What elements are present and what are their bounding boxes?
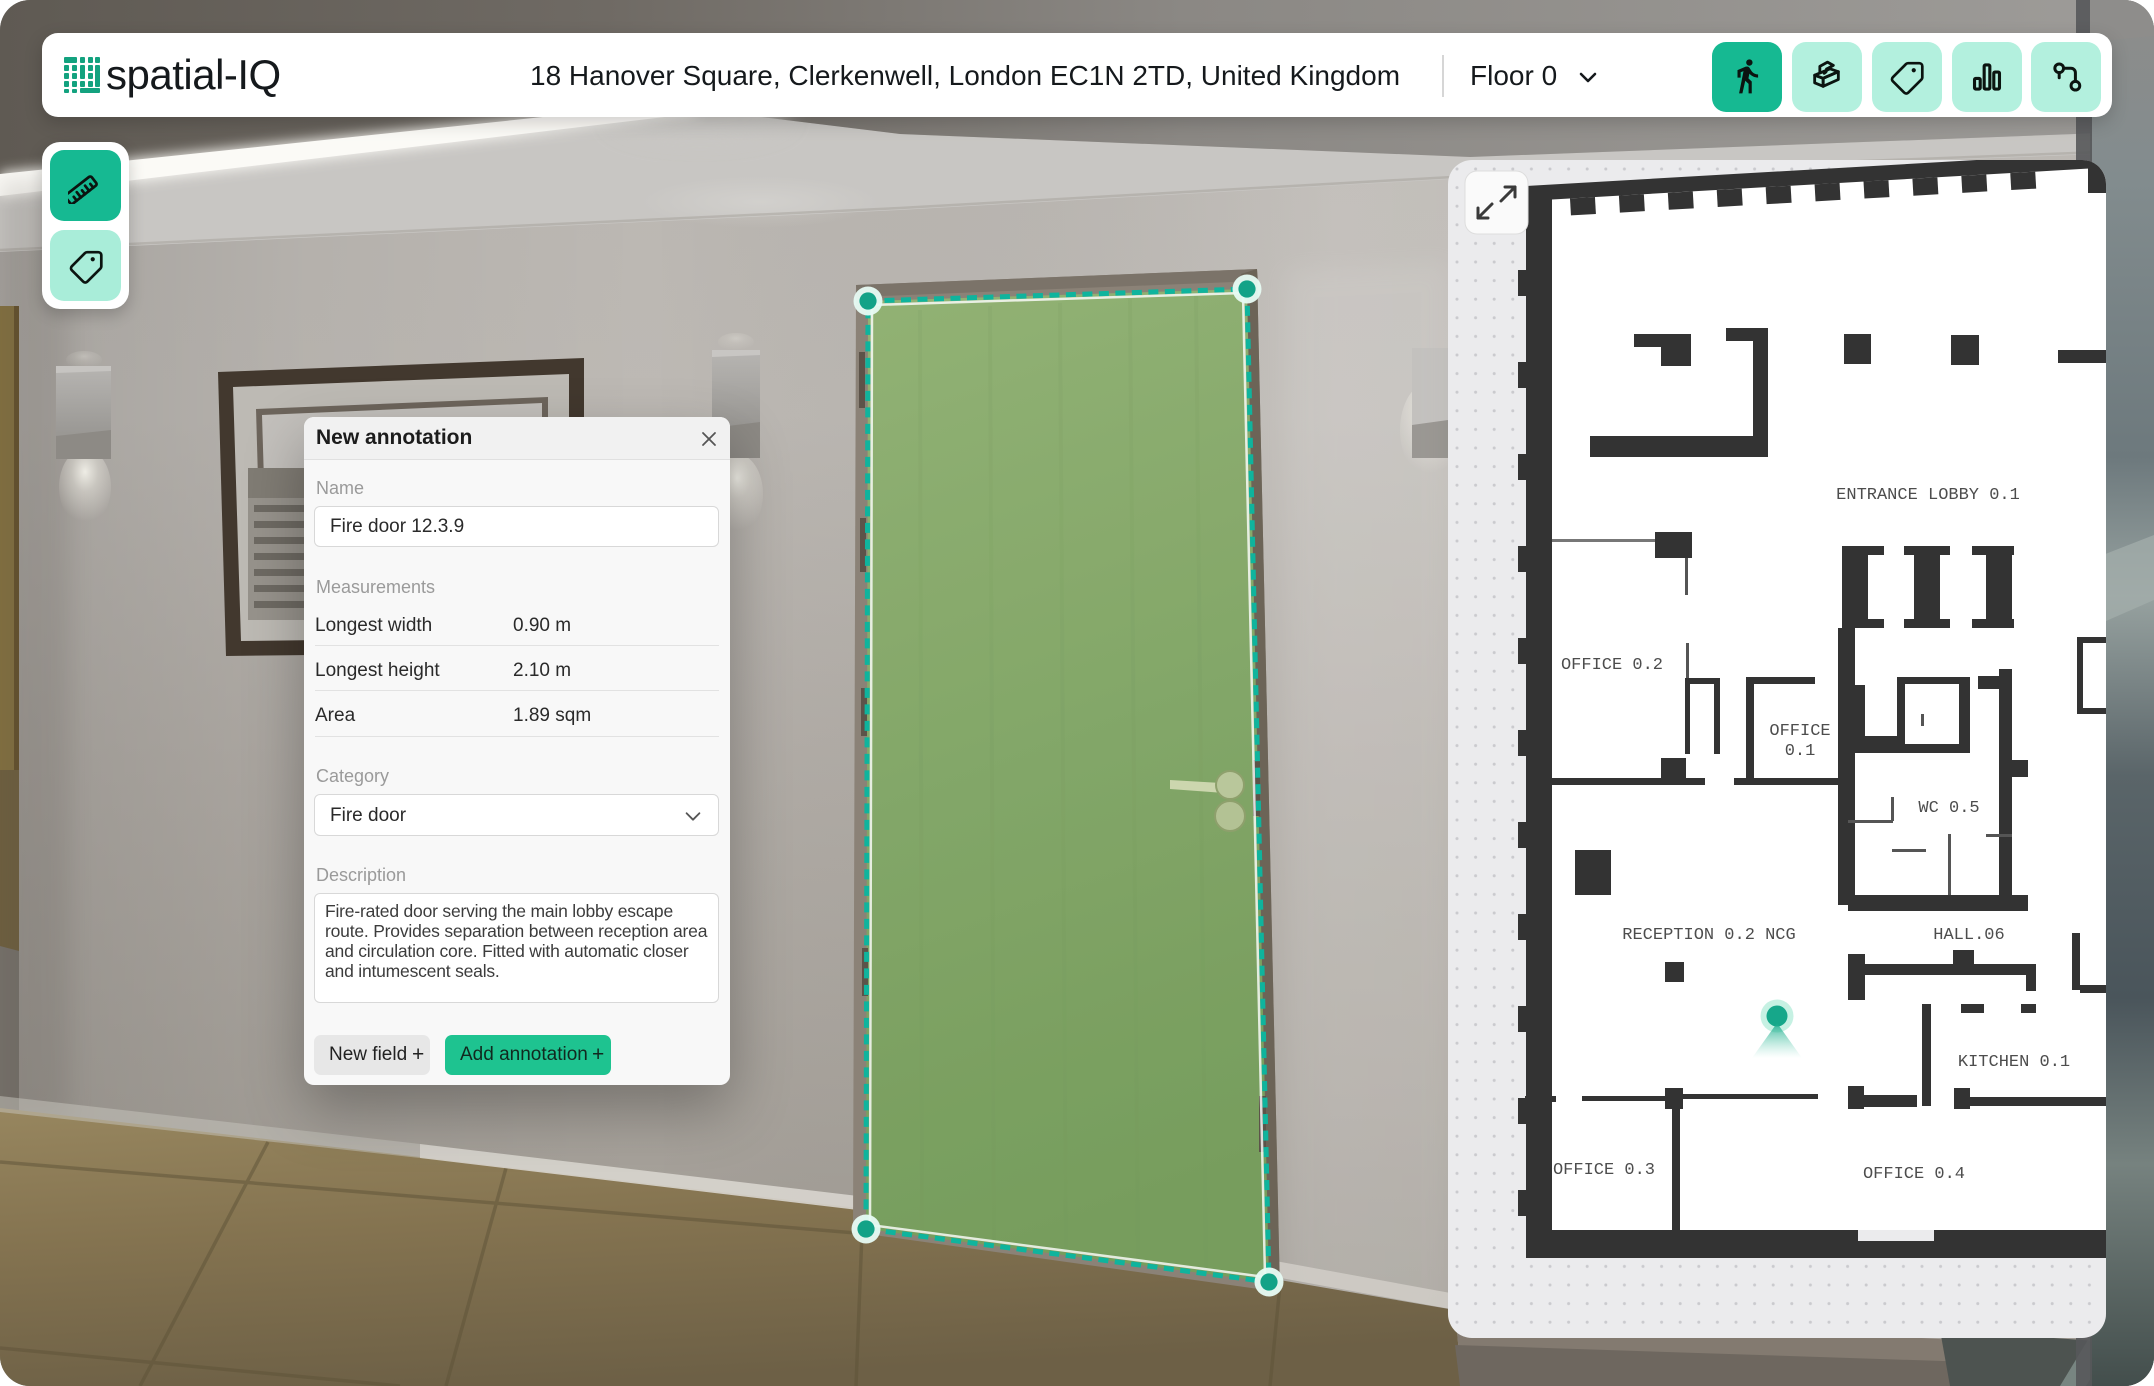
svg-text:OFFICE: OFFICE (1769, 722, 1830, 741)
svg-text:OFFICE 0.4: OFFICE 0.4 (1863, 1165, 1965, 1184)
svg-text:OFFICE 0.3: OFFICE 0.3 (1553, 1161, 1655, 1180)
svg-text:ENTRANCE LOBBY 0.1: ENTRANCE LOBBY 0.1 (1836, 486, 2020, 505)
svg-text:RECEPTION 0.2 NCG: RECEPTION 0.2 NCG (1622, 926, 1795, 945)
svg-text:WC 0.5: WC 0.5 (1918, 799, 1979, 818)
svg-text:KITCHEN 0.1: KITCHEN 0.1 (1958, 1053, 2070, 1072)
svg-text:0.1: 0.1 (1785, 742, 1816, 761)
svg-text:OFFICE 0.2: OFFICE 0.2 (1561, 656, 1663, 675)
svg-text:HALL.06: HALL.06 (1933, 926, 2004, 945)
